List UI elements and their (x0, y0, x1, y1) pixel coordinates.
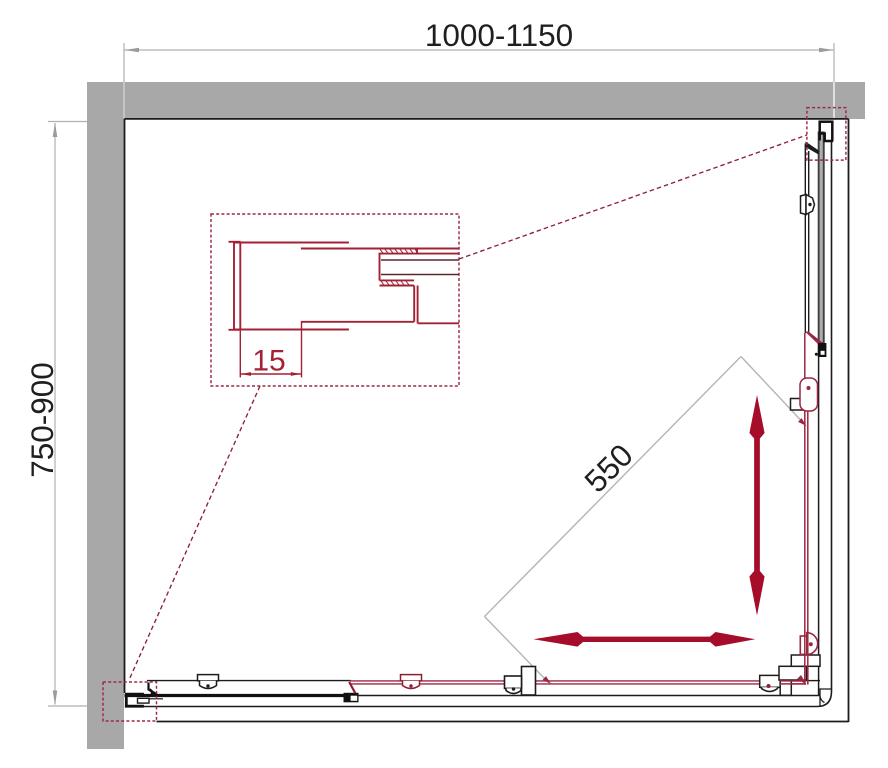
svg-text:1000-1150: 1000-1150 (425, 17, 573, 53)
svg-text:15: 15 (252, 345, 285, 378)
svg-text:750-900: 750-900 (24, 362, 60, 478)
